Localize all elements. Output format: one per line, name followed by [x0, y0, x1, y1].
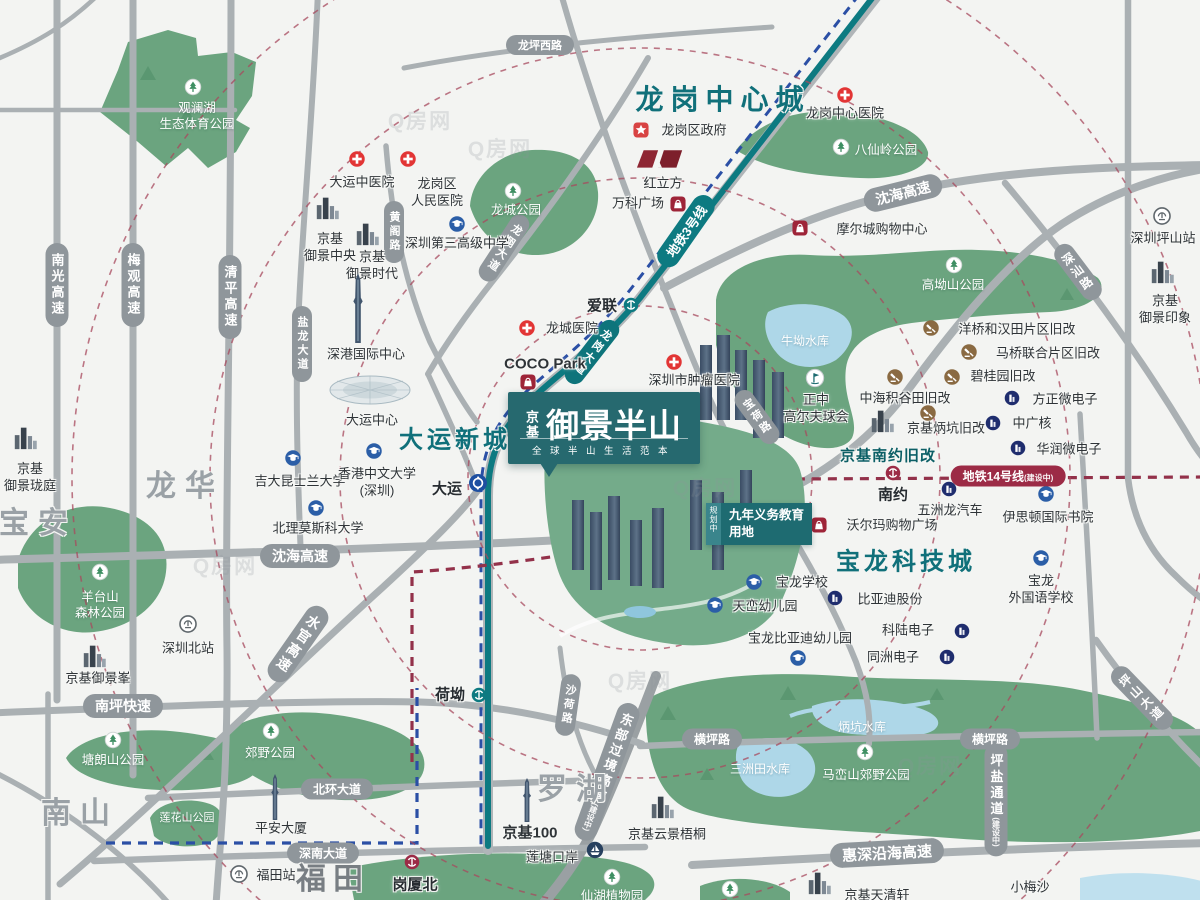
- area-label: 南山: [41, 788, 119, 832]
- poi-label: 京基云景梧桐: [628, 827, 706, 844]
- area-label: 宝安: [0, 498, 77, 542]
- poi-label: 荷坳: [435, 685, 465, 705]
- golf-icon: [806, 369, 825, 388]
- gavel-icon: [887, 369, 904, 386]
- poi-label: 同洲电子: [867, 650, 919, 667]
- project-logo-prefix: 京基: [522, 410, 541, 440]
- school-icon: [746, 574, 763, 591]
- poi-label: 八仙岭公园: [855, 142, 918, 158]
- poi-label: 京基南约旧改: [840, 446, 936, 466]
- poi-label: 科陆电子: [882, 623, 934, 640]
- poi-label: 平安大厦: [255, 821, 307, 838]
- road-badge: 横坪路: [682, 729, 742, 750]
- poi-label: 香港中文大学(深圳): [338, 466, 416, 500]
- poi-label: 深圳北站: [162, 641, 214, 658]
- hospital-icon: [349, 151, 366, 168]
- company-icon: [1004, 390, 1020, 406]
- poi-label: 吉大昆士兰大学: [254, 474, 345, 491]
- road-badge: 地铁14号线(建设中): [951, 466, 1066, 487]
- school-icon: [790, 650, 807, 667]
- park-icon: [604, 869, 621, 886]
- tower-icon: [351, 273, 366, 343]
- area-label: 福田: [296, 854, 370, 898]
- poi-label: 福田站: [256, 868, 295, 885]
- hospital-icon: [837, 87, 854, 104]
- poi-label: 深圳第三高级中学: [405, 236, 509, 253]
- gov-icon: [633, 122, 650, 139]
- poi-label: 三洲田水库: [730, 762, 790, 778]
- metror-icon: [885, 465, 901, 481]
- poi-label: 华润微电子: [1036, 442, 1101, 459]
- project-tagline: 全球半山生活范本: [520, 438, 688, 457]
- poi-label: 沃尔玛购物广场: [846, 518, 937, 535]
- metror-icon: [404, 854, 420, 870]
- poi-label: 仙湖植物园: [581, 888, 644, 900]
- poi-label: 中广核: [1012, 416, 1051, 433]
- poi-label: 碧桂园旧改: [970, 369, 1035, 386]
- buildings-icon: [869, 407, 897, 434]
- poi-label: 北理莫斯科大学: [272, 521, 363, 538]
- metrot-icon: [623, 297, 639, 313]
- poi-label: 五洲龙汽车: [917, 503, 982, 520]
- gavel-icon: [923, 320, 940, 337]
- buildings-icon: [649, 793, 677, 820]
- company-icon: [1010, 440, 1026, 456]
- poi-label: 方正微电子: [1032, 392, 1097, 409]
- poi-label: 莲塘口岸: [526, 850, 578, 867]
- buildings-icon: [12, 424, 40, 451]
- poi-label: 马峦山郊野公园: [822, 767, 910, 783]
- location-map: 京基 御景半山 全球半山生活范本 规划中 九年义务教育 用地 龙坪西路沈海高速沈…: [0, 0, 1200, 900]
- poi-label: 比亚迪股份: [857, 592, 922, 609]
- poi-label: 爱联: [587, 296, 617, 316]
- project-logo-banner: 京基 御景半山 全球半山生活范本: [508, 392, 700, 464]
- gavel-icon: [961, 344, 978, 361]
- area-label: 大运新城: [399, 420, 511, 455]
- park-icon: [505, 183, 522, 200]
- poi-label: 京基御景峯: [65, 671, 130, 688]
- school-icon: [707, 597, 724, 614]
- poi-label: 万科广场: [612, 196, 664, 213]
- edu-planning-tag: 规划中: [706, 503, 721, 545]
- buildings-icon: [354, 220, 382, 247]
- poi-label: COCO Park: [504, 354, 586, 374]
- road-badge: 南光高速: [46, 243, 69, 327]
- road-badge: 坪盐通道(建设中): [985, 743, 1008, 856]
- hospital-icon: [519, 320, 536, 337]
- poi-label: 摩尔城购物中心: [836, 222, 927, 239]
- area-label: 宝龙科技城: [836, 542, 976, 577]
- poi-label: 龙岗区政府: [661, 123, 726, 140]
- poi-label: 宝龙外国语学校: [1008, 573, 1073, 607]
- poi-label: 大运中心: [346, 413, 398, 430]
- shop-icon: [792, 220, 809, 237]
- poi-label: 龙城公园: [491, 202, 541, 218]
- poi-label: 洋桥和汉田片区旧改: [958, 322, 1075, 339]
- poi-label: 京基100: [502, 823, 557, 843]
- shop-icon: [670, 196, 687, 213]
- poi-label: 宝龙比亚迪幼儿园: [748, 631, 852, 648]
- poi-label: 大运中医院: [329, 175, 394, 192]
- poi-label: 宝龙学校: [776, 575, 828, 592]
- road-badge: 龙坪西路: [506, 35, 574, 55]
- park-icon: [92, 564, 109, 581]
- hospital-icon: [400, 151, 417, 168]
- road-badge: 清平高速: [219, 255, 242, 339]
- park-icon: [946, 257, 963, 274]
- poi-label: 马桥联合片区旧改: [996, 346, 1100, 363]
- buildings-icon: [1149, 258, 1177, 285]
- road-badge: 北环大道: [301, 779, 373, 800]
- company-icon: [985, 415, 1001, 431]
- poi-label: 龙城医院: [546, 321, 598, 338]
- poi-label: 京基御景印象: [1139, 293, 1191, 327]
- road-badge: 沈海高速: [260, 544, 340, 568]
- gavel-icon: [920, 405, 937, 422]
- park-icon: [857, 744, 874, 761]
- poi-label: 龙岗中心医院: [806, 106, 884, 123]
- poi-label: 观澜湖生态体育公园: [159, 100, 234, 133]
- train-icon: [230, 865, 249, 884]
- poi-label: 天峦幼儿园: [732, 599, 797, 616]
- poi-label: 高坳山公园: [922, 277, 985, 293]
- poi-label: 郊野公园: [245, 745, 295, 761]
- area-label: 罗湖: [537, 764, 615, 808]
- tower-icon: [521, 778, 534, 822]
- gavel-icon: [944, 369, 961, 386]
- edu-badge-text: 九年义务教育 用地: [721, 503, 812, 545]
- poi-label: 伊思顿国际书院: [1002, 510, 1093, 527]
- poi-label: 京基炳坑旧改: [907, 421, 985, 438]
- park-icon: [833, 139, 850, 156]
- road-badge: 盐龙大道: [292, 306, 312, 382]
- hospital-icon: [666, 354, 683, 371]
- poi-label: 中海积谷田旧改: [859, 391, 950, 408]
- poi-label: 深圳市肿瘤医院: [648, 373, 739, 390]
- shop-icon: [811, 517, 828, 534]
- poi-label: 塘朗山公园: [82, 752, 145, 768]
- poi-label: 京基御景珑庭: [4, 461, 56, 495]
- education-land-badge: 规划中 九年义务教育 用地: [706, 503, 812, 545]
- poi-label: 龙岗区人民医院: [411, 176, 463, 210]
- school-icon: [308, 500, 325, 517]
- park-icon: [722, 881, 739, 898]
- port-icon: [586, 841, 604, 859]
- poi-label: 牛坳水库: [781, 334, 829, 350]
- poi-label: 小梅沙: [1010, 880, 1049, 897]
- school-icon: [1033, 550, 1050, 567]
- area-label: 龙岗中心城: [635, 78, 810, 118]
- park-icon: [185, 79, 202, 96]
- metrot-icon: [471, 687, 487, 703]
- poi-label: 京基天清轩: [844, 888, 909, 900]
- roundabout-icon: [469, 474, 488, 493]
- poi-label: 大运: [432, 479, 462, 499]
- tower-icon: [269, 774, 281, 820]
- school-icon: [449, 216, 466, 233]
- park-icon: [263, 723, 280, 740]
- shop-icon: [520, 374, 537, 391]
- poi-label: 炳坑水库: [838, 720, 886, 736]
- buildings-icon: [314, 194, 342, 221]
- road-badge: 南坪快速: [83, 694, 163, 718]
- poi-label: 岗厦北: [392, 875, 437, 895]
- poi-label: 羊台山森林公园: [75, 589, 125, 622]
- school-icon: [285, 450, 302, 467]
- stadium-icon: [327, 372, 413, 408]
- area-label: 龙华: [146, 461, 224, 505]
- poi-label: 深港国际中心: [327, 347, 405, 364]
- park-icon: [105, 732, 122, 749]
- company-icon: [941, 481, 957, 497]
- company-icon: [939, 649, 955, 665]
- buildings-icon: [806, 869, 834, 896]
- school-icon: [366, 443, 383, 460]
- train-icon: [179, 615, 198, 634]
- poi-label: 正中高尔夫球会: [783, 392, 848, 426]
- poi-label: 红立方: [643, 176, 682, 193]
- company-icon: [827, 590, 843, 606]
- train-icon: [1153, 207, 1172, 226]
- poi-label: 莲花山公园: [160, 811, 215, 825]
- buildings-icon: [81, 642, 109, 669]
- road-badge: 梅观高速: [122, 243, 145, 327]
- poi-label: 南约: [878, 485, 908, 505]
- poi-label: 深圳坪山站: [1130, 231, 1195, 248]
- company-icon: [954, 623, 970, 639]
- redcube-icon: [635, 148, 687, 168]
- school-icon: [1038, 486, 1055, 503]
